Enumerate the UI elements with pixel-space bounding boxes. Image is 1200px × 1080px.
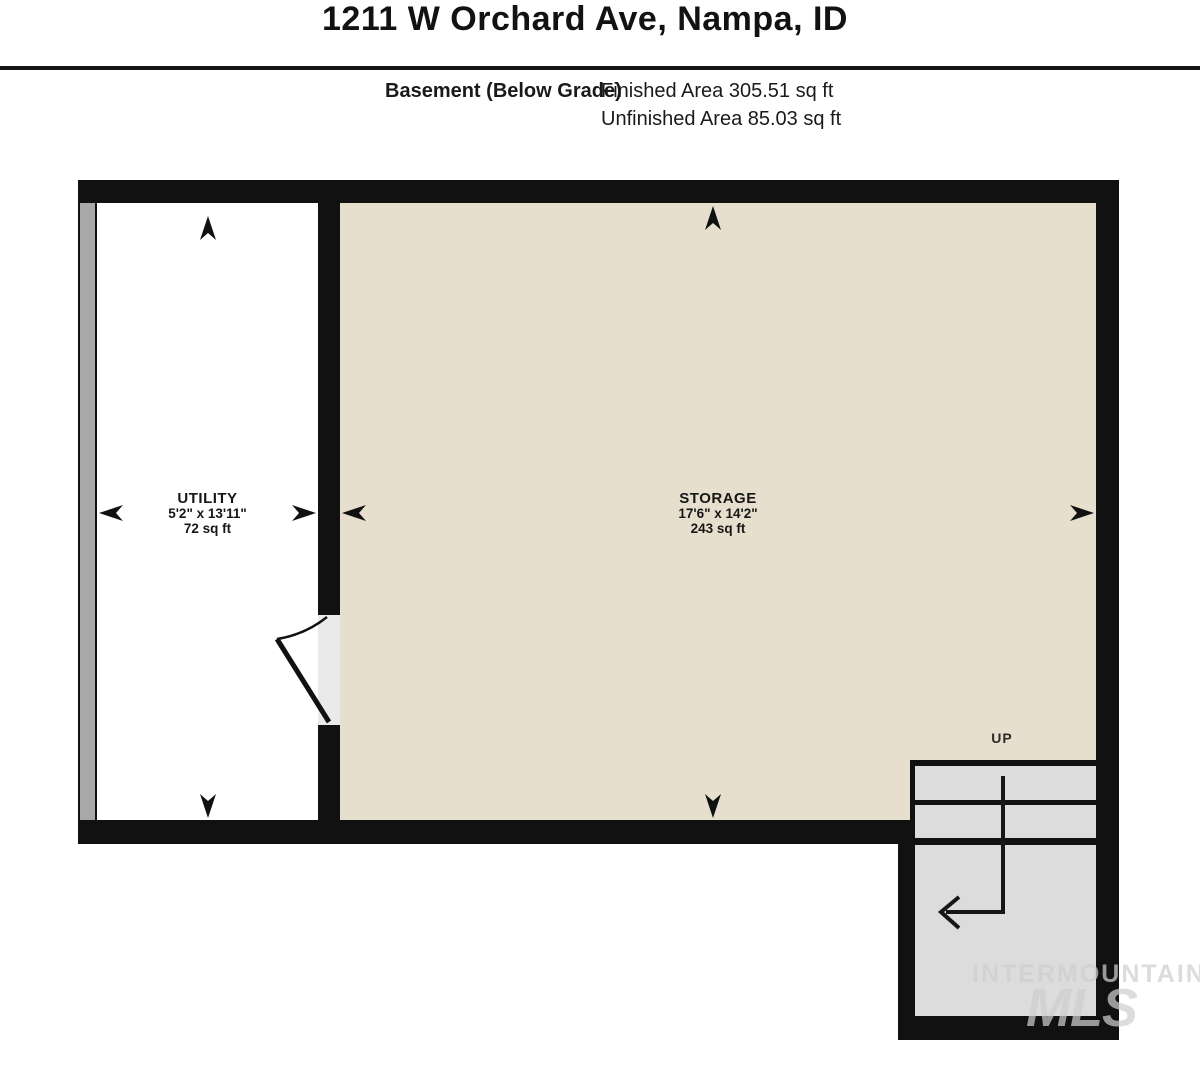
stairs-treads <box>910 760 1096 845</box>
finished-area-value: Finished Area 305.51 sq ft <box>601 80 833 103</box>
room-dimensions: 5'2" x 13'11" <box>97 506 318 521</box>
stairs-up-label: UP <box>968 730 1036 746</box>
room-area: 72 sq ft <box>97 521 318 536</box>
room-dimensions: 17'6" x 14'2" <box>340 506 1096 521</box>
room-area: 243 sq ft <box>340 521 1096 536</box>
stair-tread <box>915 805 1096 838</box>
room-name: UTILITY <box>97 491 318 506</box>
storage-room-label: STORAGE 17'6" x 14'2" 243 sq ft <box>340 491 1096 536</box>
page-title: 1211 W Orchard Ave, Nampa, ID <box>0 0 1170 39</box>
unfinished-area-value: Unfinished Area 85.03 sq ft <box>601 108 841 131</box>
door-opening <box>318 615 340 725</box>
utility-room-label: UTILITY 5'2" x 13'11" 72 sq ft <box>97 491 318 536</box>
header-divider <box>0 66 1200 70</box>
mls-watermark-logo: MLS <box>1026 977 1137 1039</box>
floor-level-label: Basement (Below Grade) <box>385 80 622 103</box>
stair-tread <box>915 766 1096 800</box>
left-foundation-wall <box>80 203 95 820</box>
floor-plan-page: { "header": { "title": "1211 W Orchard A… <box>0 0 1200 1080</box>
room-name: STORAGE <box>340 491 1096 506</box>
